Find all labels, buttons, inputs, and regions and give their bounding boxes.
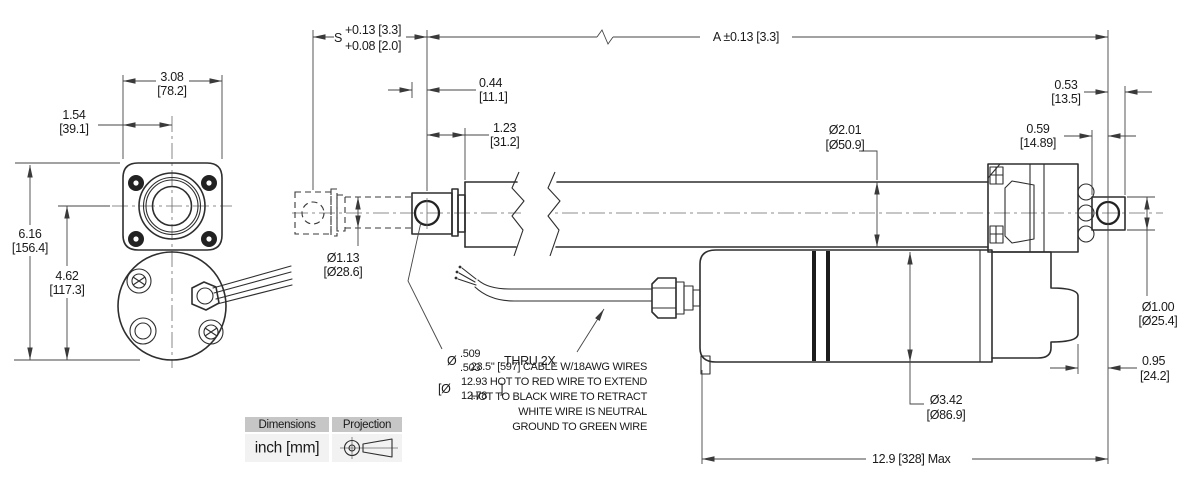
hole-mm-open: [Ø <box>438 382 451 396</box>
centerlines <box>112 116 1163 368</box>
tube-break-gap <box>521 166 554 260</box>
cable-note-line5: GROUND TO GREEN WIRE <box>512 421 647 433</box>
dim-pin-offset-in: 0.44 <box>479 76 502 90</box>
legend-projection-label: Projection <box>343 419 391 431</box>
cable-note-line2: HOT TO RED WIRE TO EXTEND <box>490 376 647 388</box>
dim-pin-offset-mm: [11.1] <box>479 90 508 104</box>
dim-fv-width-in: 3.08 <box>160 70 183 84</box>
dim-fv-half-mm: [39.1] <box>59 122 88 136</box>
legend-table: Dimensions Projection inch [mm] <box>245 417 402 462</box>
dim-fv-motor-height-mm: [117.3] <box>49 283 84 297</box>
dim-tube-dia-in: Ø2.01 <box>829 123 862 137</box>
dim-length-a: A ±0.13 [3.3] <box>713 30 779 44</box>
cable-note-line4: WHITE WIRE IS NEUTRAL <box>518 406 647 418</box>
cable-gland-side <box>652 278 676 318</box>
dim-rear-pin-in: Ø1.00 <box>1142 300 1175 314</box>
dim-fv-half-in: 1.54 <box>62 108 85 122</box>
side-view <box>295 164 1125 374</box>
cable-note-line3: HOT TO BLACK WIRE TO RETRACT <box>471 391 648 403</box>
rear-gearbox <box>988 164 1078 252</box>
legend-dimensions-value: inch [mm] <box>255 440 319 457</box>
dim-rod-dia-in: Ø1.13 <box>327 251 360 265</box>
dim-overall-max: 12.9 [328] Max <box>872 452 952 466</box>
cable-gland-front <box>192 282 219 310</box>
hole-mm-upper: 12.93 <box>461 376 487 388</box>
dim-clevis-tube-mm: [31.2] <box>490 135 519 149</box>
cable-note-line1: 23.5" [597] CABLE W/18AWG WIRES <box>471 361 647 373</box>
dim-stroke-lower: +0.08 [2.0] <box>345 39 401 53</box>
actuator-dimension-drawing: 3.08 [78.2] 1.54 [39.1] 6.16 [156.4] 4.6… <box>0 0 1200 484</box>
hole-dia-symbol: Ø <box>447 354 457 368</box>
dim-fv-width-mm: [78.2] <box>157 84 186 98</box>
hole-upper: .509 <box>460 348 480 360</box>
rod-end-clevis <box>412 189 465 236</box>
hole-callout-leader <box>408 222 442 349</box>
rod-end-extended-phantom <box>295 189 412 236</box>
motor-face-details <box>127 269 223 344</box>
cable <box>455 266 652 301</box>
front-view <box>118 163 292 360</box>
gear-housing <box>992 252 1078 358</box>
dim-clevis-tube-in: 1.23 <box>493 121 516 135</box>
dim-fv-height-mm: [156.4] <box>12 241 48 255</box>
front-view-dimensions: 3.08 [78.2] 1.54 [39.1] 6.16 [156.4] 4.6… <box>12 70 222 360</box>
cable-note-leader <box>577 309 604 352</box>
dim-motor-dia-in: Ø3.42 <box>930 393 963 407</box>
motor-housing-side <box>652 250 1078 374</box>
dim-fv-height-in: 6.16 <box>18 227 41 241</box>
dim-stroke-label: S <box>334 31 342 45</box>
dim-fv-motor-height-in: 4.62 <box>55 269 78 283</box>
dim-rear-overhang-in: 0.95 <box>1142 354 1165 368</box>
dim-rear-pin-mm: [Ø25.4] <box>1139 314 1178 328</box>
dim-rear-hole-end-in: 0.53 <box>1054 78 1077 92</box>
dim-tube-dia-mm: [Ø50.9] <box>826 138 865 152</box>
side-view-dimensions: S +0.13 [3.3] +0.08 [2.0] A ±0.13 [3.3] … <box>313 23 1177 466</box>
drawing-canvas: 3.08 [78.2] 1.54 [39.1] 6.16 [156.4] 4.6… <box>0 0 1200 484</box>
legend-dimensions-label: Dimensions <box>258 419 316 431</box>
dim-rear-face-hole-mm: [14.89] <box>1020 136 1056 150</box>
dim-rear-face-hole-in: 0.59 <box>1026 122 1049 136</box>
dim-stroke-upper: +0.13 [3.3] <box>345 23 401 37</box>
dim-motor-dia-mm: [Ø86.9] <box>927 408 966 422</box>
dim-rod-dia-mm: [Ø28.6] <box>324 265 363 279</box>
dim-rear-hole-end-mm: [13.5] <box>1051 92 1080 106</box>
cable-note: 23.5" [597] CABLE W/18AWG WIRES HOT TO R… <box>471 361 648 433</box>
dim-rear-overhang-mm: [24.2] <box>1140 369 1169 383</box>
